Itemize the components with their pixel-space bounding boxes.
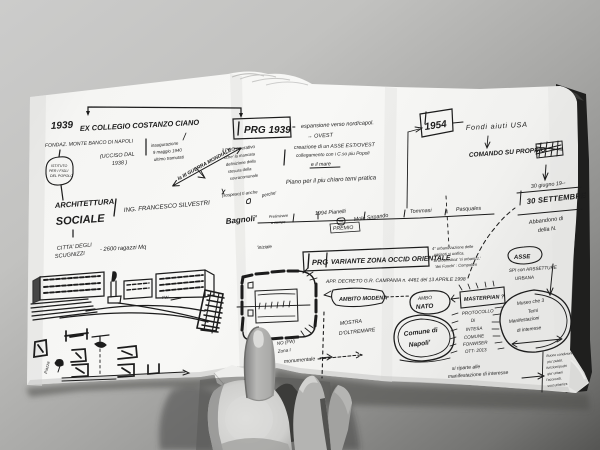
svg-text:ISTITUTO: ISTITUTO	[51, 164, 68, 168]
svg-text:=: =	[292, 125, 296, 131]
svg-text:PRG 1939: PRG 1939	[244, 125, 291, 136]
svg-text:'iniziale: 'iniziale	[257, 244, 273, 250]
svg-text:PRG: PRG	[312, 257, 329, 267]
svg-text:NATO: NATO	[416, 303, 434, 311]
svg-text:DEL POPOLO: DEL POPOLO	[50, 174, 73, 178]
svg-text:AMBO: AMBO	[417, 295, 433, 302]
svg-text:Tommasi: Tommasi	[410, 208, 433, 215]
svg-text:PER I FIGLI: PER I FIGLI	[49, 169, 68, 173]
svg-text:1938 ): 1938 )	[112, 160, 128, 167]
svg-text:ASSE: ASSE	[513, 254, 532, 261]
svg-text:PREMIO: PREMIO	[333, 225, 354, 232]
svg-text:1939: 1939	[51, 120, 74, 132]
